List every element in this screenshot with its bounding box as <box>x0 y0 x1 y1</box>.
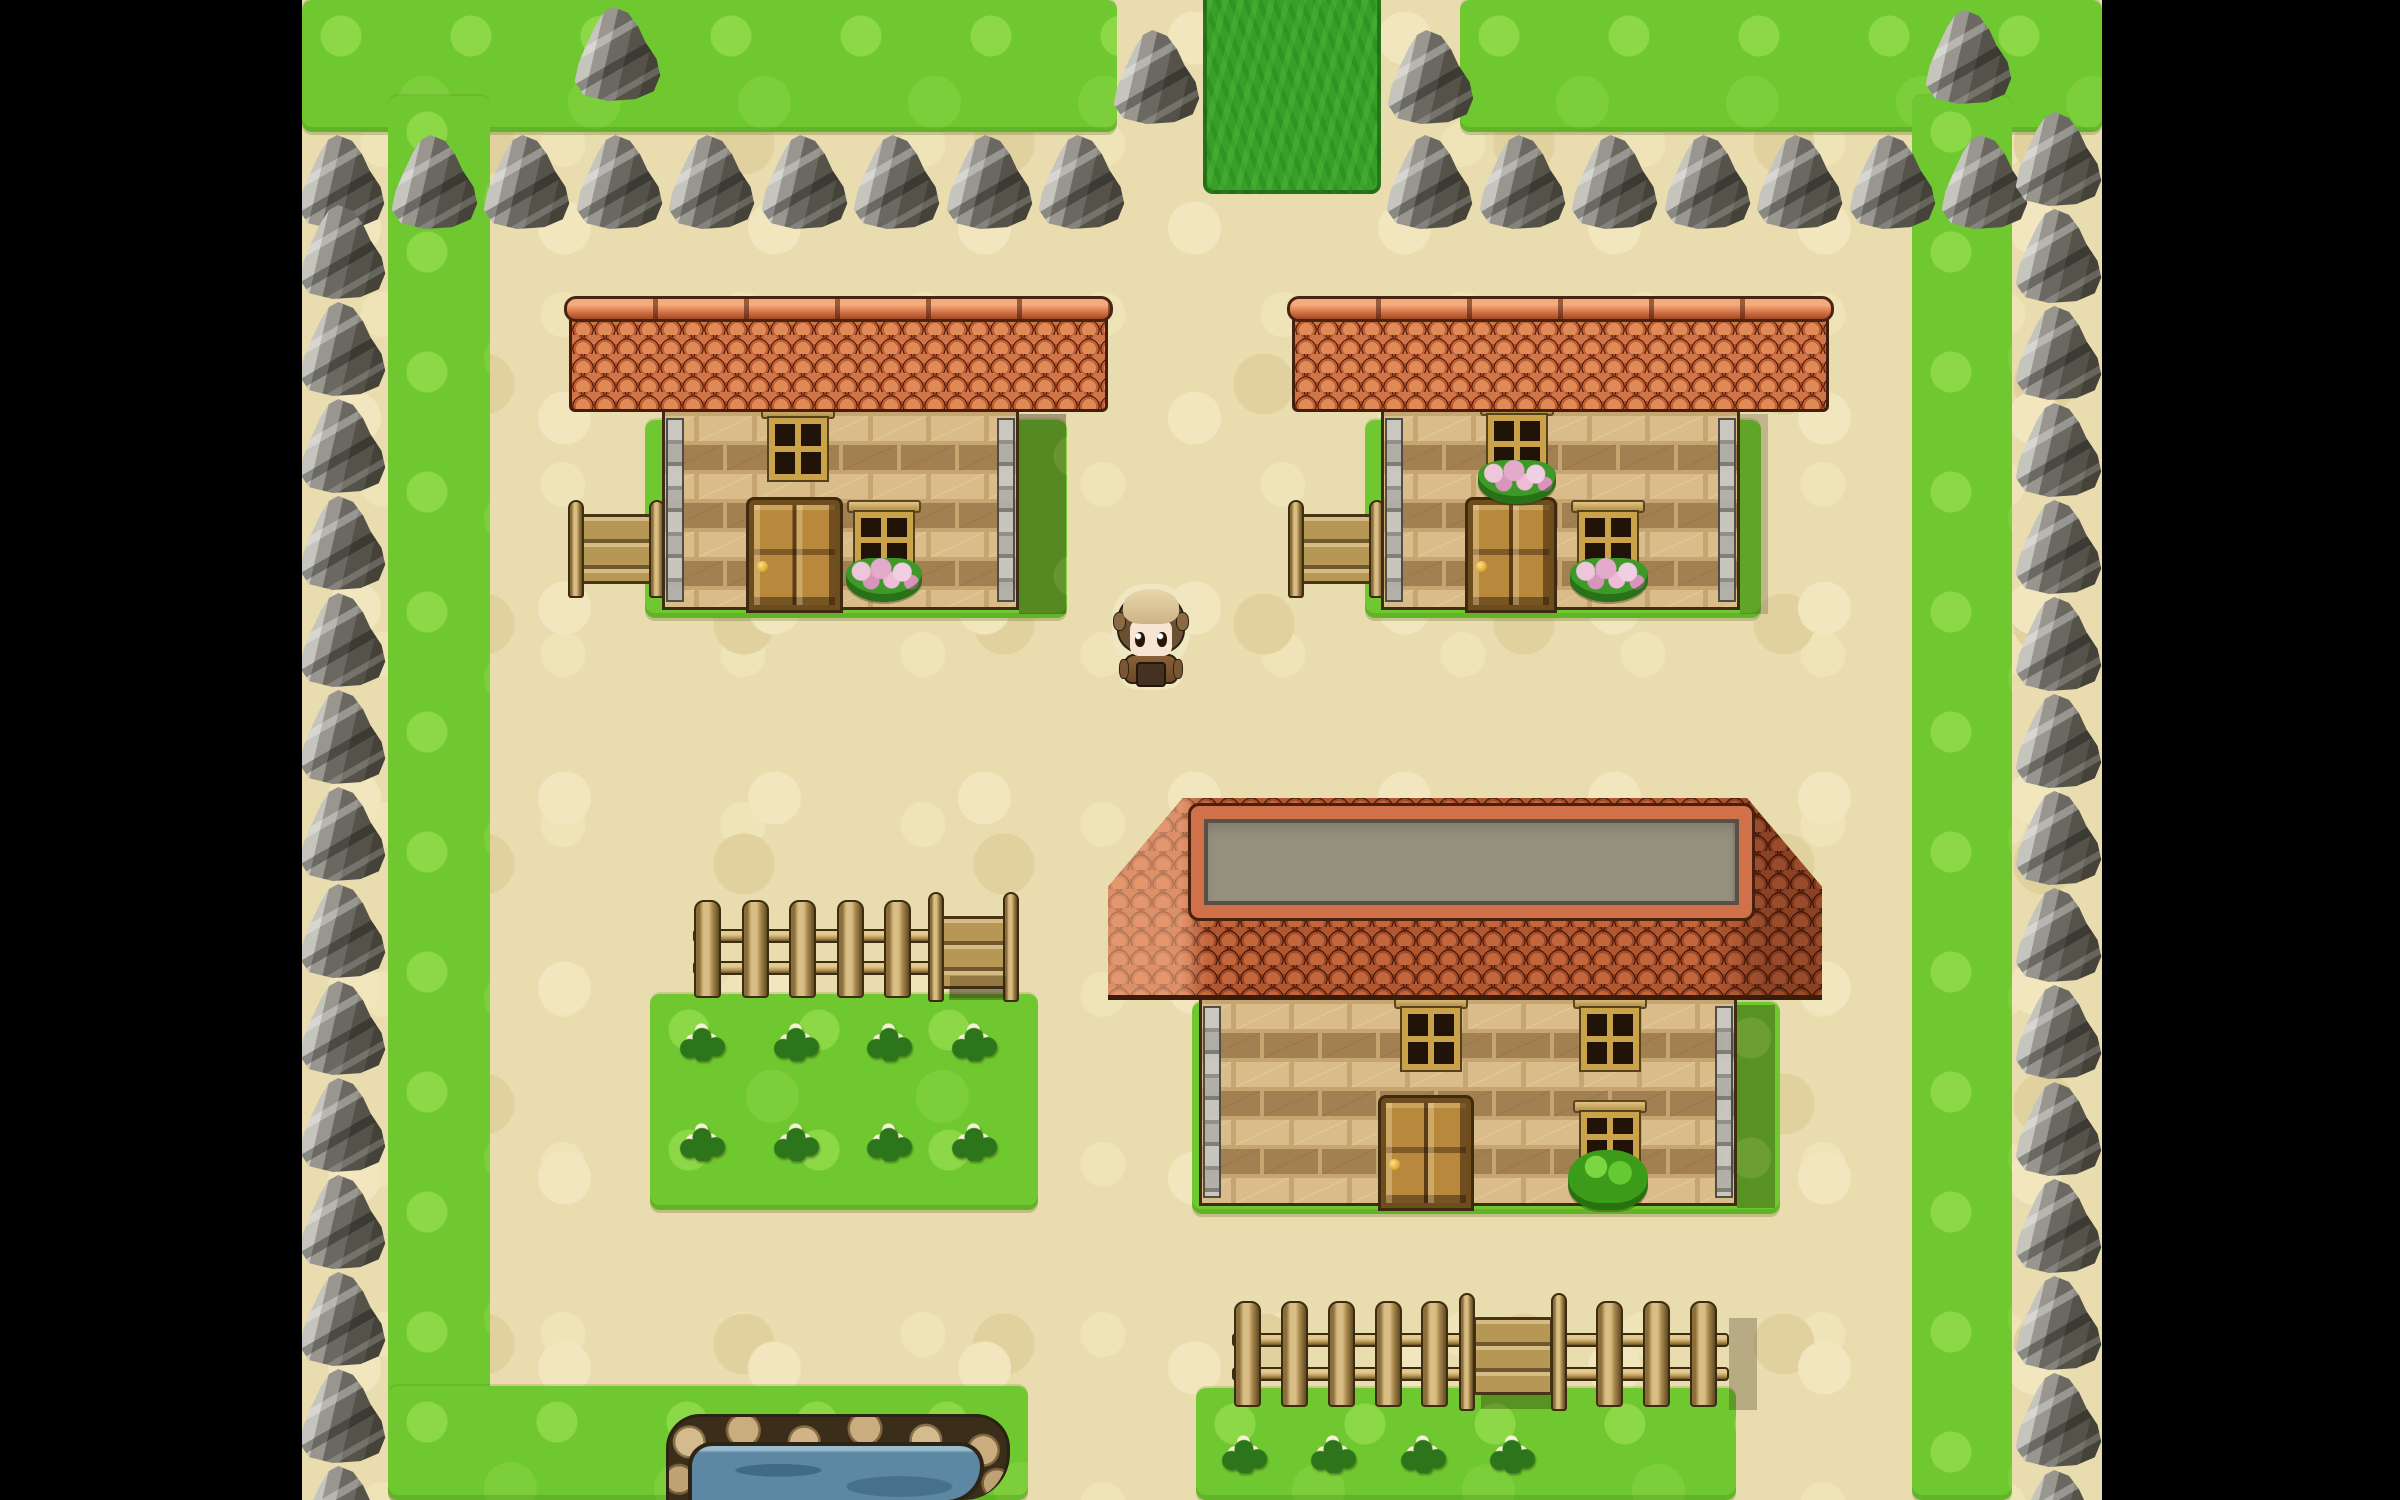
fence-garden-bottom-gate-post-right <box>1551 1293 1567 1411</box>
fence-garden-bottom-post <box>1234 1301 1261 1407</box>
flower-cluster-white <box>950 1119 998 1161</box>
game-window <box>0 0 2400 1500</box>
fence-garden-bottom-post <box>1421 1301 1448 1407</box>
flower-cluster-white <box>678 1019 726 1061</box>
house-top-left-roof-ridge <box>564 296 1113 322</box>
fence-garden-left-post <box>694 900 721 998</box>
fence-garden-left-post <box>742 900 769 998</box>
letterbox-right <box>2102 0 2400 1500</box>
player-eye-left <box>1135 632 1145 647</box>
fence-garden-bottom-post <box>1281 1301 1308 1407</box>
house-big-door <box>1381 1098 1471 1208</box>
house-top-left-bench-planks <box>580 514 653 584</box>
house-top-left-bench-post-left <box>568 500 584 598</box>
ground-shadow <box>1729 1318 1757 1410</box>
fence-garden-left-post <box>837 900 864 998</box>
flower-cluster-white <box>1309 1431 1357 1473</box>
house-top-left-door-knob <box>757 561 768 572</box>
house-top-right-door-knob <box>1476 561 1487 572</box>
flower-cluster-white <box>772 1019 820 1061</box>
house-big-cornerstones-right <box>1715 1006 1733 1198</box>
house-top-left-door <box>749 500 840 610</box>
house-top-left-cornerstones-left <box>666 418 684 602</box>
player-torso <box>1136 662 1166 687</box>
house-top-left-cast-shadow <box>1019 414 1066 614</box>
house-big-window <box>1581 1008 1639 1070</box>
flower-cluster-white <box>678 1119 726 1161</box>
house-big-roof-eave <box>1108 995 1822 1000</box>
player-arm-right <box>1173 659 1183 679</box>
fence-garden-bottom-gate-panel <box>1473 1317 1553 1395</box>
house-big-door-knob <box>1389 1159 1400 1170</box>
player-eye-right <box>1157 632 1167 647</box>
house-top-right-cornerstones-right <box>1718 418 1736 602</box>
house-big-cornerstones-left <box>1203 1006 1221 1198</box>
pond-water <box>692 1446 980 1500</box>
fence-garden-bottom-gate-shadow <box>1481 1393 1561 1409</box>
ground-shadow <box>950 976 1006 998</box>
house-big-window <box>1402 1008 1460 1070</box>
letterbox-left <box>0 0 302 1500</box>
house-top-left-cornerstones-right <box>997 418 1015 602</box>
flower-cluster-white <box>865 1019 913 1061</box>
grass-border-left <box>388 96 490 1500</box>
house-top-right-roof-ridge <box>1287 296 1834 322</box>
fence-garden-bottom-post <box>1375 1301 1402 1407</box>
house-top-right-flowerbox <box>1570 558 1648 602</box>
house-top-left-wall <box>662 410 1019 610</box>
fence-garden-bottom-post <box>1643 1301 1670 1407</box>
player-hair-top <box>1123 589 1179 624</box>
path-exit-top <box>1203 0 1381 194</box>
player-character[interactable] <box>1114 586 1188 688</box>
flower-cluster-white <box>950 1019 998 1061</box>
game-viewport[interactable] <box>302 0 2102 1500</box>
house-top-right-bench-planks <box>1300 514 1373 584</box>
flower-cluster-white <box>772 1119 820 1161</box>
fence-garden-bottom-post <box>1690 1301 1717 1407</box>
house-top-left-window <box>769 418 827 480</box>
fence-garden-bottom-post <box>1328 1301 1355 1407</box>
house-top-right-bench-post-left <box>1288 500 1304 598</box>
house-top-right-wall <box>1381 410 1740 610</box>
fence-garden-left-post <box>884 900 911 998</box>
fence-garden-left-post <box>789 900 816 998</box>
house-top-left-flowerbox <box>846 558 922 602</box>
house-top-right-cornerstones-left <box>1385 418 1403 602</box>
fence-garden-left-gate-post-left <box>928 892 944 1002</box>
flower-cluster-white <box>1399 1431 1447 1473</box>
flower-cluster-white <box>1488 1431 1536 1473</box>
house-top-right-flowerbox <box>1478 460 1556 504</box>
house-big-roof-plateau <box>1191 806 1752 918</box>
grass-border-right <box>1912 96 2012 1500</box>
flower-cluster-white <box>1220 1431 1268 1473</box>
house-top-right-cast-shadow <box>1740 414 1768 614</box>
player-arm-left <box>1119 659 1129 679</box>
flower-cluster-white <box>865 1119 913 1161</box>
fence-garden-bottom-gate-post-left <box>1459 1293 1475 1411</box>
house-big-cast-shadow <box>1737 1005 1775 1208</box>
house-top-right-door <box>1468 500 1554 610</box>
house-big-bush <box>1568 1150 1648 1210</box>
fence-garden-bottom-post <box>1596 1301 1623 1407</box>
